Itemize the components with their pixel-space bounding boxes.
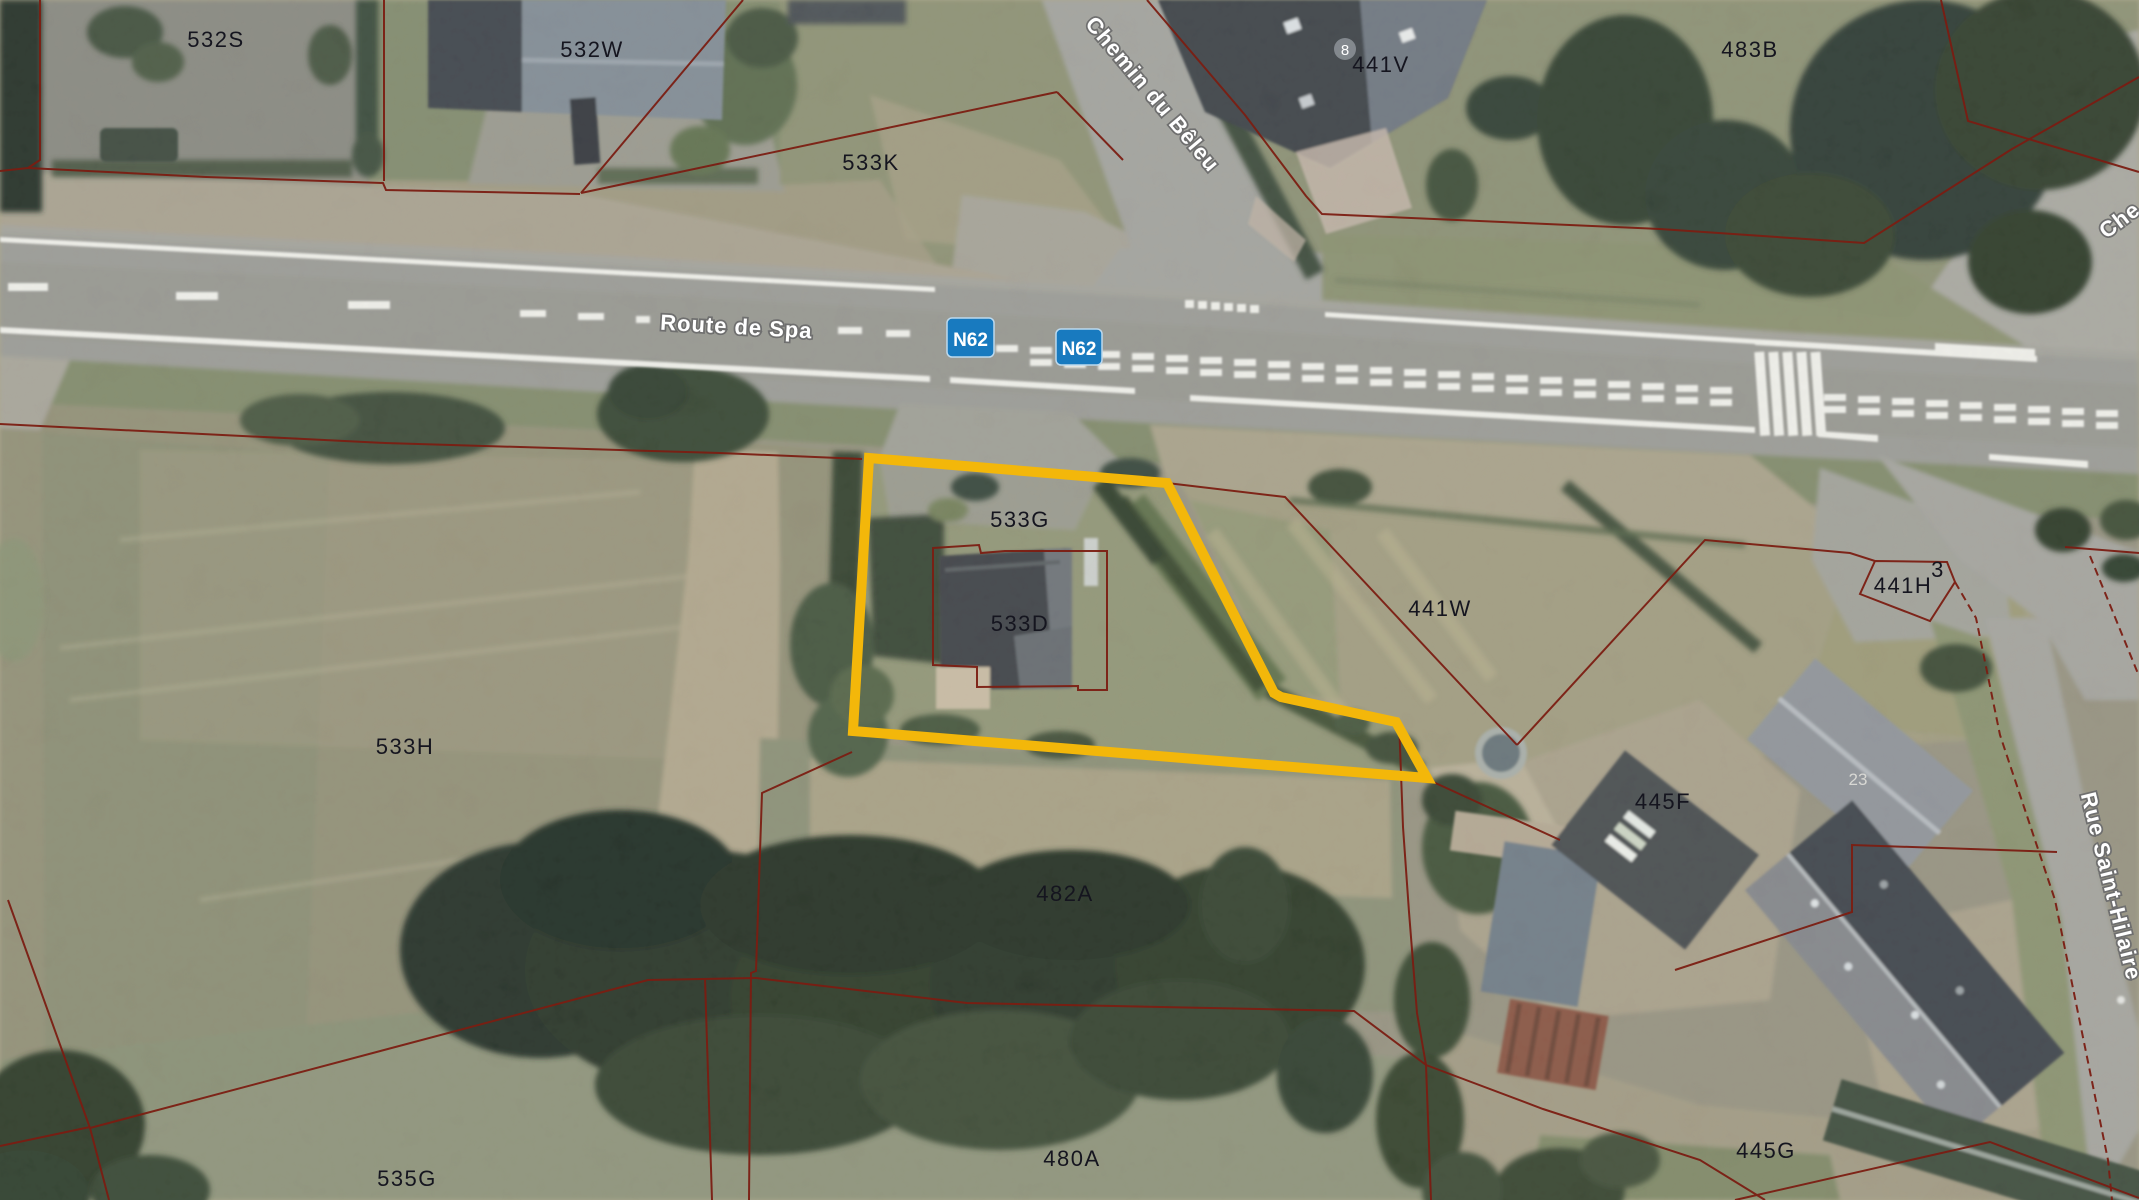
svg-text:480A: 480A — [1043, 1146, 1100, 1171]
svg-text:441H: 441H — [1874, 573, 1933, 598]
svg-text:532S: 532S — [187, 27, 244, 52]
svg-text:482A: 482A — [1036, 881, 1093, 906]
svg-text:3: 3 — [1931, 557, 1945, 582]
svg-text:441V: 441V — [1352, 52, 1409, 77]
svg-text:533D: 533D — [991, 611, 1050, 636]
svg-text:532W: 532W — [560, 37, 623, 62]
svg-text:533G: 533G — [990, 507, 1050, 532]
svg-text:441W: 441W — [1408, 596, 1471, 621]
svg-text:445G: 445G — [1736, 1138, 1796, 1163]
svg-text:8: 8 — [1341, 42, 1349, 59]
svg-text:N62: N62 — [953, 330, 988, 351]
svg-text:533H: 533H — [376, 734, 435, 759]
svg-text:533K: 533K — [842, 150, 899, 175]
svg-text:23: 23 — [1849, 770, 1868, 789]
svg-text:445F: 445F — [1635, 789, 1691, 814]
svg-text:535G: 535G — [377, 1166, 437, 1191]
svg-text:N62: N62 — [1062, 339, 1097, 360]
svg-text:483B: 483B — [1721, 37, 1778, 62]
